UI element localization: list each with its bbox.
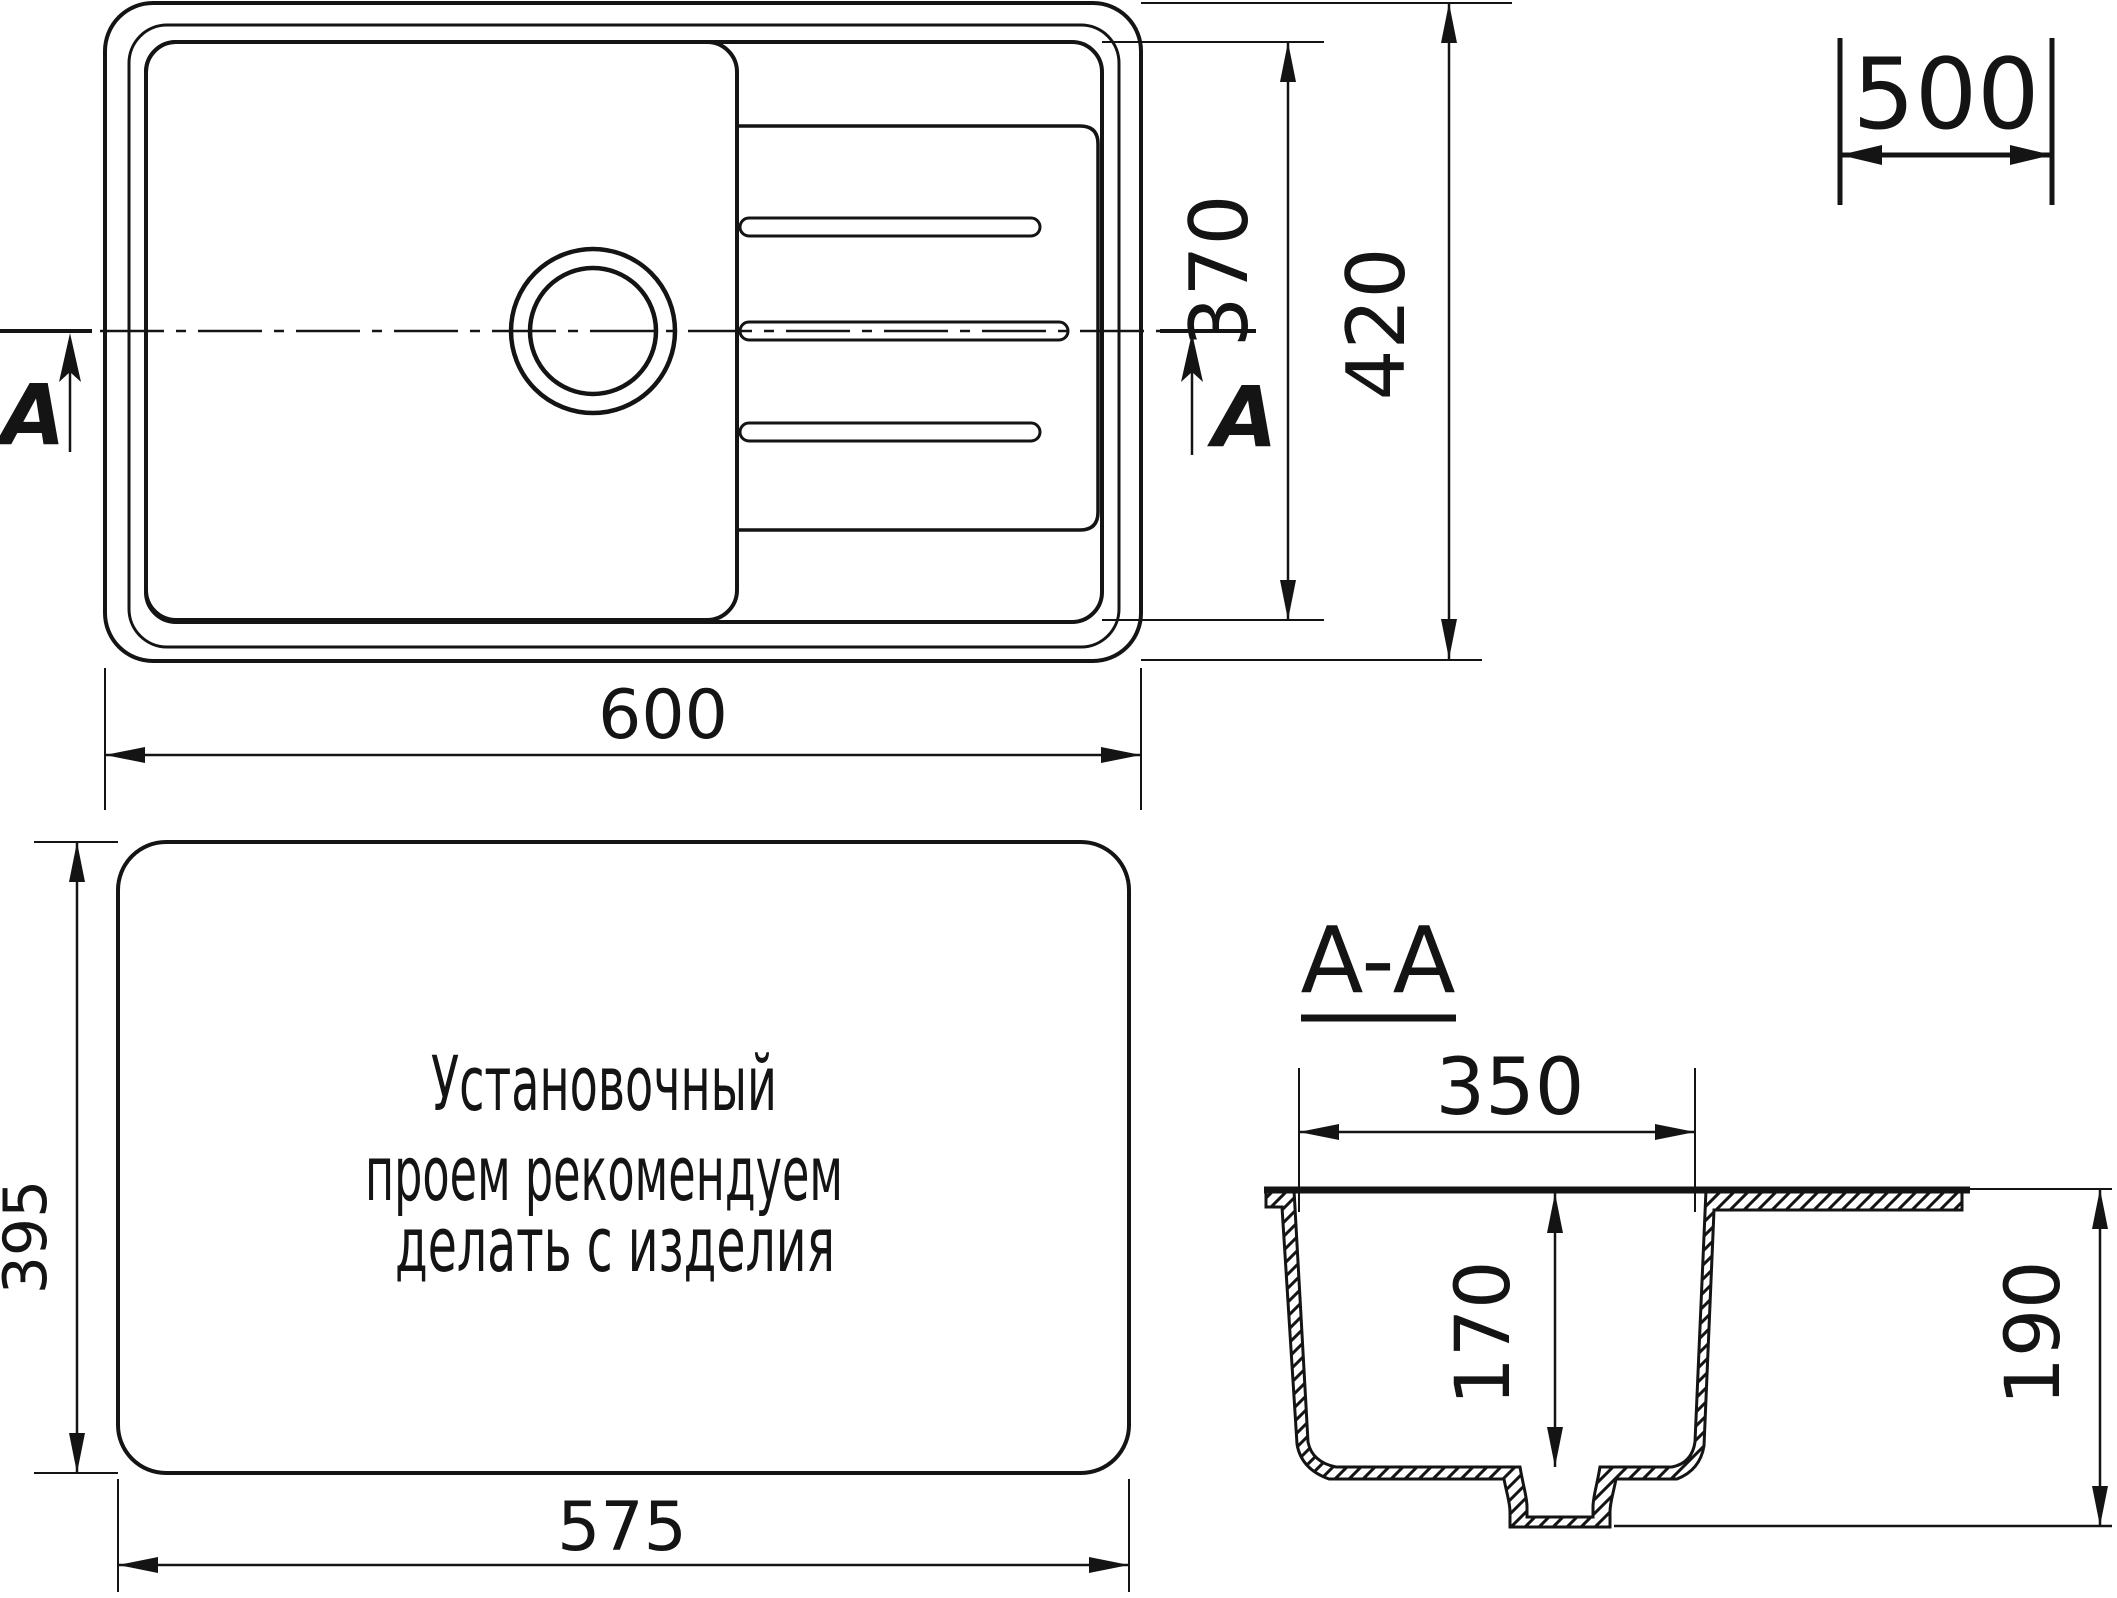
dim-170-label: 170 [1438, 1260, 1527, 1405]
dim-350-label: 350 [1436, 1043, 1585, 1133]
dim-190-label: 190 [1988, 1260, 2077, 1405]
dim-420-label: 420 [1330, 248, 1423, 401]
dim-575-label: 575 [557, 1488, 687, 1567]
dim-395 [34, 842, 118, 1473]
drainboard-groove-bottom [740, 423, 1040, 441]
note-line-3: делать с изделия [395, 1200, 835, 1289]
section-body [1266, 1190, 1962, 1527]
section-title: A-A [1300, 907, 1455, 1014]
note-line-1: Установочный [431, 1039, 777, 1128]
drainboard-groove-top [740, 218, 1040, 236]
cutout-note: Установочный проем рекомендуем делать с … [365, 1039, 843, 1289]
technical-drawing-sink: 600 370 420 500 A A 395 [0, 0, 2117, 1598]
dim-395-label: 395 [0, 1180, 61, 1295]
section-letter-right: A [1206, 368, 1277, 466]
dim-170 [1547, 1193, 1563, 1467]
section-view: A-A [1264, 907, 2112, 1527]
section-letter-left: A [0, 366, 66, 464]
dim-600-label: 600 [598, 676, 728, 755]
dim-500-label: 500 [1852, 38, 2039, 152]
drainboard-panel [737, 126, 1098, 530]
sink-inner-rim-contour [129, 25, 1119, 647]
dim-370-label: 370 [1173, 195, 1266, 348]
top-view [0, 3, 1256, 661]
